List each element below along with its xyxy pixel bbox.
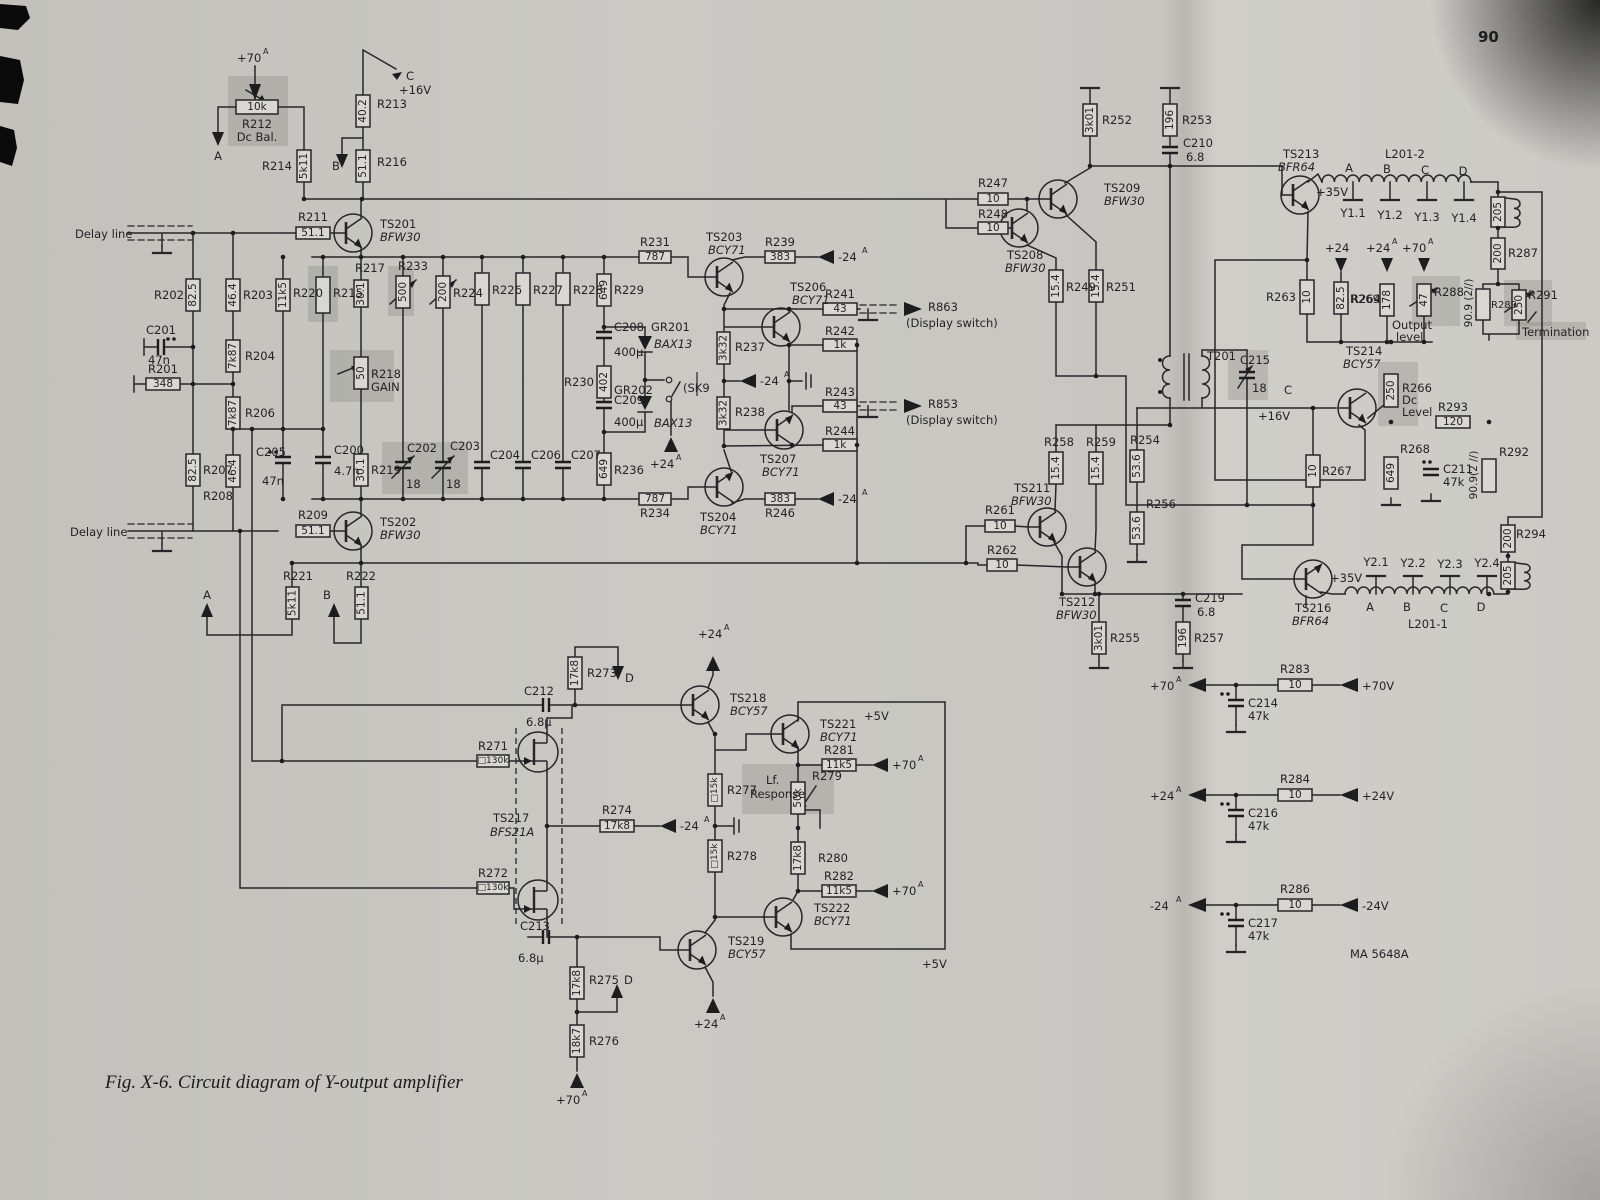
c215-value: 18 bbox=[1252, 381, 1267, 395]
y22-label: Y2.2 bbox=[1399, 556, 1425, 570]
r207-value: 82.5 bbox=[187, 458, 199, 481]
r233-value: 500 bbox=[397, 282, 409, 302]
r217-value: 30.1 bbox=[355, 282, 367, 305]
ts208-type: BFW30 bbox=[1005, 261, 1046, 275]
marker-a: A bbox=[214, 149, 222, 163]
c208-value: 400µ bbox=[614, 345, 644, 359]
c200-value: 4.7n bbox=[334, 464, 360, 478]
r257-value: 196 bbox=[1177, 628, 1189, 648]
r208-value: 46.4 bbox=[227, 459, 239, 483]
r204-label: R204 bbox=[245, 349, 275, 363]
delay-line-top: Delay line bbox=[75, 227, 132, 241]
r291-label: R291 bbox=[1528, 288, 1558, 302]
r262-value: 10 bbox=[995, 559, 1008, 571]
supply-16v: +16V bbox=[399, 83, 431, 97]
ts219-type: BCY57 bbox=[728, 947, 766, 961]
marker-d: D bbox=[625, 671, 634, 685]
r201-value: 348 bbox=[153, 378, 173, 390]
tap-d2: D bbox=[1477, 600, 1486, 614]
r268-label: R268 bbox=[1400, 442, 1430, 456]
ts207-type: BCY71 bbox=[762, 465, 800, 479]
r279-value: 50k bbox=[792, 787, 804, 807]
marker-b2: B bbox=[323, 588, 331, 602]
r293-label: R293 bbox=[1438, 400, 1468, 414]
r263-value: 10 bbox=[1301, 290, 1313, 303]
r221-value: 5k11 bbox=[287, 590, 299, 616]
r249-value: 15.4 bbox=[1050, 274, 1062, 298]
c200-label: C200 bbox=[334, 443, 364, 457]
r255-label: R255 bbox=[1110, 631, 1140, 645]
r206-label: R206 bbox=[245, 406, 275, 420]
c213-value: 6.8µ bbox=[518, 951, 544, 965]
display-switch-1: (Display switch) bbox=[906, 316, 998, 330]
ts204-type: BCY71 bbox=[700, 523, 738, 537]
tap-b2: B bbox=[1403, 600, 1411, 614]
gr202-type: BAX13 bbox=[654, 416, 692, 430]
r234-label: R234 bbox=[640, 506, 670, 520]
ts212-type: BFW30 bbox=[1056, 608, 1097, 622]
r291-value: 250 bbox=[1513, 295, 1525, 315]
r286-value: 10 bbox=[1288, 899, 1301, 911]
marker-b: B bbox=[332, 159, 340, 173]
r289-value: 90.9 (2//) bbox=[1463, 279, 1475, 328]
r212-note: Dc Bal. bbox=[237, 130, 278, 144]
r237-value: 3k32 bbox=[718, 335, 730, 361]
r222-label: R222 bbox=[346, 569, 376, 583]
sup-a: A bbox=[918, 754, 924, 763]
ts216-label: TS216 bbox=[1294, 601, 1331, 615]
c217-value: 47k bbox=[1248, 929, 1270, 943]
circuit-diagram: +70A 10k R212 Dc Bal. A R213 40.2 R214 5… bbox=[0, 0, 1600, 1200]
r243-label: R243 bbox=[825, 385, 855, 399]
sup-a: A bbox=[918, 880, 924, 889]
r284-value: 10 bbox=[1288, 789, 1301, 801]
sup-a: A bbox=[582, 1089, 588, 1098]
r280-label: R280 bbox=[818, 851, 848, 865]
r271-value: □130k bbox=[478, 756, 510, 766]
supply-5v-2: +5V bbox=[922, 957, 947, 971]
r288-label: R288 bbox=[1434, 285, 1464, 299]
r220-value: 11k5 bbox=[277, 282, 289, 308]
y12-label: Y1.2 bbox=[1376, 208, 1402, 222]
r243-value: 43 bbox=[833, 400, 846, 412]
r239-label: R239 bbox=[765, 235, 795, 249]
ts216-type: BFR64 bbox=[1292, 614, 1329, 628]
r292-value: 90.9(2 //) bbox=[1468, 451, 1480, 500]
r219-label: R219 bbox=[371, 463, 401, 477]
c217-label: C217 bbox=[1248, 916, 1278, 930]
y21-label: Y2.1 bbox=[1362, 555, 1388, 569]
rail-m24a: -24 bbox=[1150, 899, 1169, 913]
marker-a2: A bbox=[203, 588, 211, 602]
r202-label: R202 bbox=[154, 288, 184, 302]
ts203-label: TS203 bbox=[705, 230, 742, 244]
r251-value: 15.4 bbox=[1090, 274, 1102, 298]
r252-value: 3k01 bbox=[1084, 107, 1096, 133]
r266-note2: Level bbox=[1402, 405, 1432, 419]
supply-70a-2: +70 bbox=[1402, 241, 1426, 255]
ts222-type: BCY71 bbox=[814, 914, 852, 928]
y13-label: Y1.3 bbox=[1413, 210, 1439, 224]
r246-label: R246 bbox=[765, 506, 795, 520]
ts202-type: BFW30 bbox=[380, 528, 421, 542]
sup-a: A bbox=[1392, 237, 1398, 246]
page-number: 90 bbox=[1478, 28, 1499, 46]
supply-24a-4: +24 bbox=[694, 1017, 718, 1031]
r253-label: R253 bbox=[1182, 113, 1212, 127]
supply-5v-1: +5V bbox=[864, 709, 889, 723]
c203-label: C203 bbox=[450, 439, 480, 453]
r226-label: R226 bbox=[492, 283, 522, 297]
r269-value: 178 bbox=[1381, 290, 1393, 310]
ts212-label: TS212 bbox=[1058, 595, 1095, 609]
part-code: MA 5648A bbox=[1350, 947, 1409, 961]
r241-value: 43 bbox=[833, 303, 846, 315]
ts218-type: BCY57 bbox=[730, 704, 768, 718]
y24-label: Y2.4 bbox=[1473, 556, 1499, 570]
r209-value: 51.1 bbox=[301, 525, 324, 537]
r256-label: R256 bbox=[1146, 497, 1176, 511]
supply-24a-2: +24 bbox=[1366, 241, 1390, 255]
r253-value: 196 bbox=[1164, 110, 1176, 130]
c219-value: 6.8 bbox=[1197, 605, 1215, 619]
c215-label: C215 bbox=[1240, 353, 1270, 367]
r284-label: R284 bbox=[1280, 772, 1310, 786]
ts209-type: BFW30 bbox=[1104, 194, 1145, 208]
ts209-label: TS209 bbox=[1103, 181, 1140, 195]
tap-d: D bbox=[1459, 164, 1468, 178]
r276-value: 18k7 bbox=[571, 1028, 583, 1054]
r273-label: R273 bbox=[587, 666, 617, 680]
c210-label: C210 bbox=[1183, 136, 1213, 150]
c219-label: C219 bbox=[1195, 591, 1225, 605]
r224-value: 200 bbox=[437, 282, 449, 302]
delay-line-l201-1 bbox=[1345, 576, 1496, 594]
r263-label: R263 bbox=[1266, 290, 1296, 304]
r273-value: 17k8 bbox=[569, 660, 581, 686]
sup-a: A bbox=[862, 488, 868, 497]
r231-value: 787 bbox=[645, 251, 665, 263]
c207-label: C207 bbox=[571, 448, 601, 462]
ts207-label: TS207 bbox=[759, 452, 796, 466]
sup-a: A bbox=[1176, 785, 1182, 794]
r293-value: 120 bbox=[1443, 416, 1463, 428]
supply-70a-4: +70 bbox=[892, 884, 916, 898]
ts201-type: BFW30 bbox=[380, 230, 421, 244]
rail-70a: +70 bbox=[1150, 679, 1174, 693]
r206-value: 7k87 bbox=[227, 400, 239, 426]
y23-label: Y2.3 bbox=[1436, 557, 1462, 571]
r237-label: R237 bbox=[735, 340, 765, 354]
r276-label: R276 bbox=[589, 1034, 619, 1048]
c214-value: 47k bbox=[1248, 709, 1270, 723]
gr201-type: BAX13 bbox=[654, 337, 692, 351]
ts221-type: BCY71 bbox=[820, 730, 858, 744]
ts201-label: TS201 bbox=[379, 217, 416, 231]
r272-label: R272 bbox=[478, 866, 508, 880]
supply-70a: +70 bbox=[237, 51, 261, 65]
r259-value: 15.4 bbox=[1090, 456, 1102, 480]
marker-c: C bbox=[406, 69, 414, 83]
sup-a: A bbox=[724, 623, 730, 632]
r257-label: R257 bbox=[1194, 631, 1224, 645]
r208-label: R208 bbox=[203, 489, 233, 503]
neg24-4: -24 bbox=[680, 819, 699, 833]
ts217-label: TS217 bbox=[492, 811, 529, 825]
r853-label: R853 bbox=[928, 397, 958, 411]
r280-value: 17k8 bbox=[792, 845, 804, 871]
r275-value: 17k8 bbox=[571, 970, 583, 996]
r288-value: 47 bbox=[1418, 293, 1430, 306]
ts218-label: TS218 bbox=[729, 691, 766, 705]
transformer-t201 bbox=[1158, 354, 1210, 400]
supply-24-1: +24 bbox=[1325, 241, 1349, 255]
r216-value: 51.1 bbox=[357, 154, 369, 177]
figure-caption: Fig. X-6. Circuit diagram of Y-output am… bbox=[104, 1072, 463, 1093]
r230-value: 402 bbox=[598, 372, 610, 392]
sup-a: A bbox=[1428, 237, 1434, 246]
r268-value: 649 bbox=[1385, 463, 1397, 483]
r272-value: □130k bbox=[478, 883, 510, 893]
r283-value: 10 bbox=[1288, 679, 1301, 691]
ts222-label: TS222 bbox=[813, 901, 850, 915]
r227-label: R227 bbox=[533, 283, 563, 297]
r220-label: R220 bbox=[293, 286, 323, 300]
ts217-type: BFS21A bbox=[490, 825, 534, 839]
r244-label: R244 bbox=[825, 424, 855, 438]
output-level-2: level bbox=[1396, 330, 1423, 344]
r261-value: 10 bbox=[993, 520, 1006, 532]
c210-value: 6.8 bbox=[1186, 150, 1204, 164]
r251-label: R251 bbox=[1106, 280, 1136, 294]
r212-value: 10k bbox=[247, 101, 267, 113]
r234-value: 787 bbox=[645, 493, 665, 505]
display-switch-2: (Display switch) bbox=[906, 413, 998, 427]
l201-2-label: L201-2 bbox=[1385, 147, 1425, 161]
supply-24a-sk9: +24 bbox=[650, 457, 674, 471]
tap-a: A bbox=[1345, 161, 1353, 175]
r255-value: 3k01 bbox=[1093, 625, 1105, 651]
r275-label: R275 bbox=[589, 973, 619, 987]
r281-value: 11k5 bbox=[826, 759, 852, 771]
r269-label: R269 bbox=[1350, 292, 1380, 306]
gr202-label: GR202 bbox=[614, 383, 653, 397]
tap-a2: A bbox=[1366, 600, 1374, 614]
r278-value: □15k bbox=[710, 843, 720, 869]
sup-a: A bbox=[704, 815, 710, 824]
r267-label: R267 bbox=[1322, 464, 1352, 478]
neg24-1: -24 bbox=[838, 250, 857, 264]
marker-c2: C bbox=[1284, 383, 1292, 397]
r238-label: R238 bbox=[735, 405, 765, 419]
r254-value: 53.6 bbox=[1131, 454, 1143, 478]
c212-label: C212 bbox=[524, 684, 554, 698]
sup-a: A bbox=[862, 246, 868, 255]
rail-m24v: -24V bbox=[1362, 899, 1389, 913]
delay-line-bottom: Delay line bbox=[70, 525, 127, 539]
r222-value: 51.1 bbox=[356, 591, 368, 614]
r294-value: 200 bbox=[1502, 528, 1514, 548]
r261-label: R261 bbox=[985, 503, 1015, 517]
r863-label: R863 bbox=[928, 300, 958, 314]
r267-value: 10 bbox=[1307, 464, 1319, 477]
neg24-2: -24 bbox=[760, 374, 779, 388]
r214-label: R214 bbox=[262, 159, 292, 173]
c212-value: 6.8µ bbox=[526, 715, 552, 729]
r205b-value: 205 bbox=[1502, 565, 1514, 585]
c211-value: 47k bbox=[1443, 475, 1465, 489]
r236-value: 649 bbox=[598, 459, 610, 479]
rail-24a: +24 bbox=[1150, 789, 1174, 803]
c201-label: C201 bbox=[146, 323, 176, 337]
y14-label: Y1.4 bbox=[1450, 211, 1476, 225]
tap-c2: C bbox=[1440, 601, 1448, 615]
gr201-label: GR201 bbox=[651, 320, 690, 334]
r254-label: R254 bbox=[1130, 433, 1160, 447]
c216-label: C216 bbox=[1248, 806, 1278, 820]
r292-label: R292 bbox=[1499, 445, 1529, 459]
r282-value: 11k5 bbox=[826, 885, 852, 897]
r203-value: 46.4 bbox=[227, 283, 239, 307]
rail-70v: +70V bbox=[1362, 679, 1394, 693]
y11-label: Y1.1 bbox=[1339, 206, 1365, 220]
r247-value: 10 bbox=[986, 193, 999, 205]
r242-label: R242 bbox=[825, 324, 855, 338]
r218-value: 50 bbox=[355, 366, 367, 379]
r218-label: R218 bbox=[371, 367, 401, 381]
c202-label: C202 bbox=[407, 441, 437, 455]
c203-value: 18 bbox=[446, 477, 461, 491]
r201-label: R201 bbox=[148, 362, 178, 376]
r233-label: R233 bbox=[398, 259, 428, 273]
ts206-type: BCY71 bbox=[792, 293, 830, 307]
r236-label: R236 bbox=[614, 463, 644, 477]
r258-value: 15.4 bbox=[1050, 456, 1062, 480]
r266-value: 250 bbox=[1385, 380, 1397, 400]
ts219-label: TS219 bbox=[727, 934, 764, 948]
r214-value: 5k11 bbox=[298, 153, 310, 179]
r202-value: 82.5 bbox=[187, 283, 199, 306]
r216-label: R216 bbox=[377, 155, 407, 169]
r277-value: □15k bbox=[710, 777, 720, 803]
r211-value: 51.1 bbox=[301, 227, 324, 239]
marker-d2: D bbox=[624, 973, 633, 987]
r264-value: 82.5 bbox=[1335, 286, 1347, 309]
r229-label: R229 bbox=[614, 283, 644, 297]
c209-value: 400µ bbox=[614, 415, 644, 429]
r287-value: 200 bbox=[1492, 243, 1504, 263]
r256-value: 53.6 bbox=[1131, 516, 1143, 540]
c213-label: C213 bbox=[520, 919, 550, 933]
c205-label: C205 bbox=[256, 445, 286, 459]
r281-label: R281 bbox=[824, 743, 854, 757]
c202-value: 18 bbox=[406, 477, 421, 491]
ts203-type: BCY71 bbox=[708, 243, 746, 257]
sup-a: A bbox=[784, 370, 790, 379]
r282-label: R282 bbox=[824, 869, 854, 883]
supply-16v-2: +16V bbox=[1258, 409, 1290, 423]
supply-70a-3: +70 bbox=[892, 758, 916, 772]
r209-label: R209 bbox=[298, 508, 328, 522]
ts204-label: TS204 bbox=[699, 510, 736, 524]
c206-label: C206 bbox=[531, 448, 561, 462]
r213-label: R213 bbox=[377, 97, 407, 111]
r238-value: 3k32 bbox=[718, 400, 730, 426]
r258-label: R258 bbox=[1044, 435, 1074, 449]
c216-value: 47k bbox=[1248, 819, 1270, 833]
r278-label: R278 bbox=[727, 849, 757, 863]
r218-note: GAIN bbox=[371, 380, 400, 394]
supply-24a-3: +24 bbox=[698, 627, 722, 641]
r246-value: 383 bbox=[770, 493, 790, 505]
ts206-label: TS206 bbox=[789, 280, 826, 294]
r230-label: R230 bbox=[564, 375, 594, 389]
r242-value: 1k bbox=[834, 339, 848, 351]
r241-label: R241 bbox=[825, 287, 855, 301]
ts221-label: TS221 bbox=[819, 717, 856, 731]
transistors bbox=[334, 176, 1376, 969]
r229-value: 649 bbox=[598, 280, 610, 300]
r224-label: R224 bbox=[453, 286, 483, 300]
r212-label: R212 bbox=[242, 117, 272, 131]
ts208-label: TS208 bbox=[1006, 248, 1043, 262]
ts202-label: TS202 bbox=[379, 515, 416, 529]
ts211-type: BFW30 bbox=[1011, 494, 1052, 508]
r221-label: R221 bbox=[283, 569, 313, 583]
r271-label: R271 bbox=[478, 739, 508, 753]
c208-label: C208 bbox=[614, 320, 644, 334]
c214-label: C214 bbox=[1248, 696, 1278, 710]
supply-35v-1: +35V bbox=[1316, 185, 1348, 199]
r203-label: R203 bbox=[243, 288, 273, 302]
tap-c: C bbox=[1421, 163, 1429, 177]
scanned-schematic-page: +70A 10k R212 Dc Bal. A R213 40.2 R214 5… bbox=[0, 0, 1600, 1200]
r259-label: R259 bbox=[1086, 435, 1116, 449]
sk9-label: (SK9 bbox=[683, 381, 710, 395]
rail-24v: +24V bbox=[1362, 789, 1394, 803]
lf-response-1: Lf. bbox=[766, 773, 779, 787]
r283-label: R283 bbox=[1280, 662, 1310, 676]
r205a-value: 205 bbox=[1492, 202, 1504, 222]
tap-b: B bbox=[1383, 162, 1391, 176]
ts213-label: TS213 bbox=[1282, 147, 1319, 161]
termination-label: Termination bbox=[1521, 325, 1589, 339]
sup-a: A bbox=[1176, 895, 1182, 904]
supply-70a-5: +70 bbox=[556, 1093, 580, 1107]
r274-label: R274 bbox=[602, 803, 632, 817]
r204-value: 7k87 bbox=[227, 343, 239, 369]
r217-label: R217 bbox=[355, 261, 385, 275]
r213-value: 40.2 bbox=[357, 99, 369, 122]
r287-label: R287 bbox=[1508, 246, 1538, 260]
r252-label: R252 bbox=[1102, 113, 1132, 127]
r248-value: 10 bbox=[986, 222, 999, 234]
ts214-type: BCY57 bbox=[1343, 357, 1381, 371]
c204-label: C204 bbox=[490, 448, 520, 462]
sup-a: A bbox=[720, 1013, 726, 1022]
sup-a: A bbox=[1176, 675, 1182, 684]
ts213-type: BFR64 bbox=[1278, 160, 1315, 174]
r211-label: R211 bbox=[298, 210, 328, 224]
r294-label: R294 bbox=[1516, 527, 1546, 541]
ts214-label: TS214 bbox=[1345, 344, 1382, 358]
l201-1-label: L201-1 bbox=[1408, 617, 1448, 631]
t201-label: T201 bbox=[1206, 349, 1236, 363]
ts211-label: TS211 bbox=[1013, 481, 1050, 495]
r274-value: 17k8 bbox=[604, 820, 630, 832]
r244-value: 1k bbox=[834, 439, 848, 451]
neg24-3: -24 bbox=[838, 492, 857, 506]
